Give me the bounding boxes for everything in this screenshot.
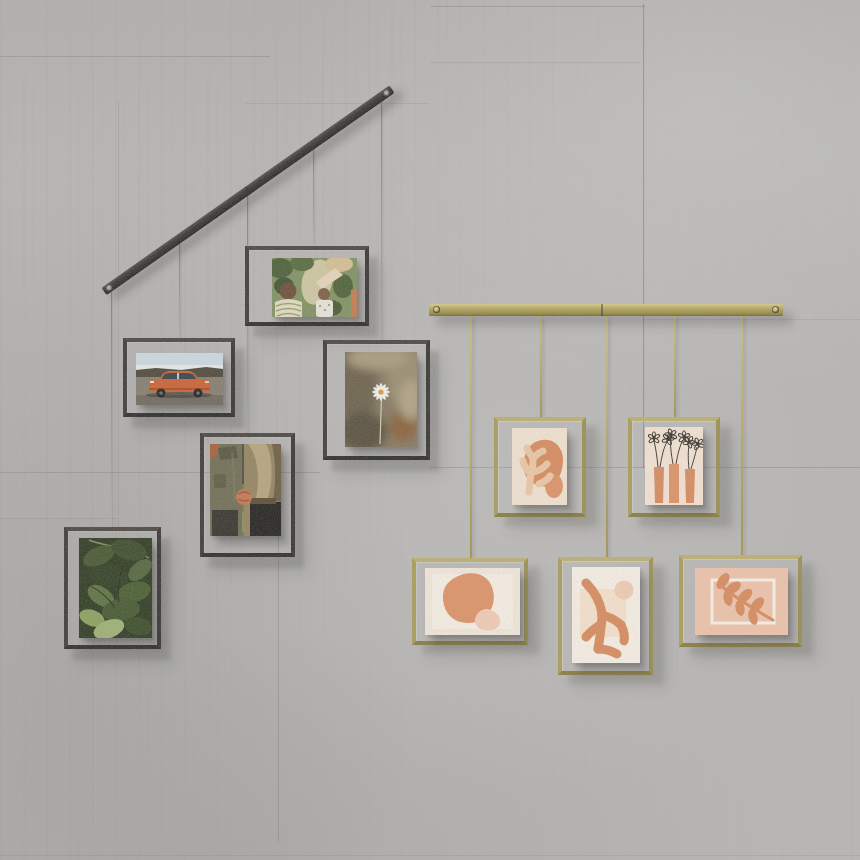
wall-seam — [430, 467, 860, 468]
vases — [654, 464, 695, 503]
wall-seam — [430, 6, 645, 7]
hanging-wire — [674, 316, 676, 418]
small-blob — [475, 609, 500, 631]
photo-orange-car — [136, 353, 223, 405]
frame-coral-branch-print — [558, 557, 653, 675]
daisy-flower — [372, 383, 390, 401]
left-person — [210, 444, 242, 536]
concrete-wall-scene — [0, 0, 860, 860]
flower-blooms — [648, 427, 703, 451]
rail-screw — [104, 283, 114, 293]
hanging-wire — [540, 316, 542, 418]
frame-leaf-branch-print — [679, 555, 802, 647]
print-coral-branch — [572, 567, 640, 663]
brass-hanging-rail — [429, 304, 783, 316]
right-person — [244, 444, 281, 536]
hanging-wire — [313, 145, 314, 247]
print-leaf-branch — [695, 568, 788, 635]
hanging-wire — [470, 316, 472, 559]
photo-green-leaves — [79, 538, 152, 638]
wall-seams — [0, 0, 860, 860]
photo-kids-garden — [272, 258, 357, 317]
photo-holding-hands — [210, 444, 281, 536]
wall-grain-texture — [0, 0, 860, 860]
adult-figure — [316, 258, 353, 289]
black-hanging-rail — [101, 85, 394, 295]
hanging-wire — [111, 289, 112, 530]
white-outline-rect — [712, 580, 774, 623]
rail-joint — [601, 304, 603, 316]
hanging-wire — [741, 316, 743, 556]
frame-coral-abstract-print — [494, 417, 586, 517]
wall-seam — [0, 855, 860, 856]
wall-seam — [643, 319, 860, 320]
hanging-wire — [606, 316, 608, 558]
coral-branch — [586, 583, 624, 654]
wall-seam — [118, 100, 119, 527]
hanging-wire — [381, 97, 382, 342]
rail-screw — [433, 306, 440, 313]
wall-seam — [245, 103, 430, 104]
brass-rail-display-group — [0, 0, 860, 860]
wall-seam — [278, 452, 279, 842]
blush-circle — [615, 581, 634, 600]
boy-figure — [275, 283, 302, 318]
print-vases-flowers — [645, 427, 703, 505]
wall-seam — [0, 472, 320, 473]
hanging-wire — [247, 191, 248, 435]
frame-green-leaves-photo — [64, 527, 161, 649]
wall-seam — [0, 56, 270, 57]
print-blob-abstract — [425, 568, 520, 635]
clasped-hands — [236, 489, 252, 505]
rail-screw — [382, 88, 392, 98]
baby-figure — [316, 288, 333, 317]
wall-tonal-shading — [0, 0, 860, 860]
frame-holding-hands-photo — [200, 433, 295, 557]
flower-stems — [654, 438, 697, 469]
photo-daisy — [345, 352, 417, 447]
rail-joint — [245, 186, 252, 195]
frame-vases-flowers-print — [628, 417, 720, 517]
rail-screw — [772, 306, 779, 313]
frame-orange-car-photo — [123, 338, 235, 417]
car — [146, 371, 212, 398]
coral-silhouette — [523, 448, 550, 492]
wall-seam — [0, 518, 118, 519]
black-rail-display-group — [0, 0, 860, 860]
wall-seam — [643, 4, 644, 468]
wall-seam — [430, 62, 640, 63]
large-blob — [439, 570, 498, 627]
frame-daisy-photo — [323, 340, 430, 460]
frame-kids-photo — [245, 246, 369, 326]
hanging-wire — [179, 239, 180, 340]
print-coral-abstract — [512, 428, 567, 505]
leaf-branch — [714, 571, 773, 626]
frame-blob-abstract-print — [412, 558, 528, 645]
wall-streaks — [0, 0, 860, 860]
